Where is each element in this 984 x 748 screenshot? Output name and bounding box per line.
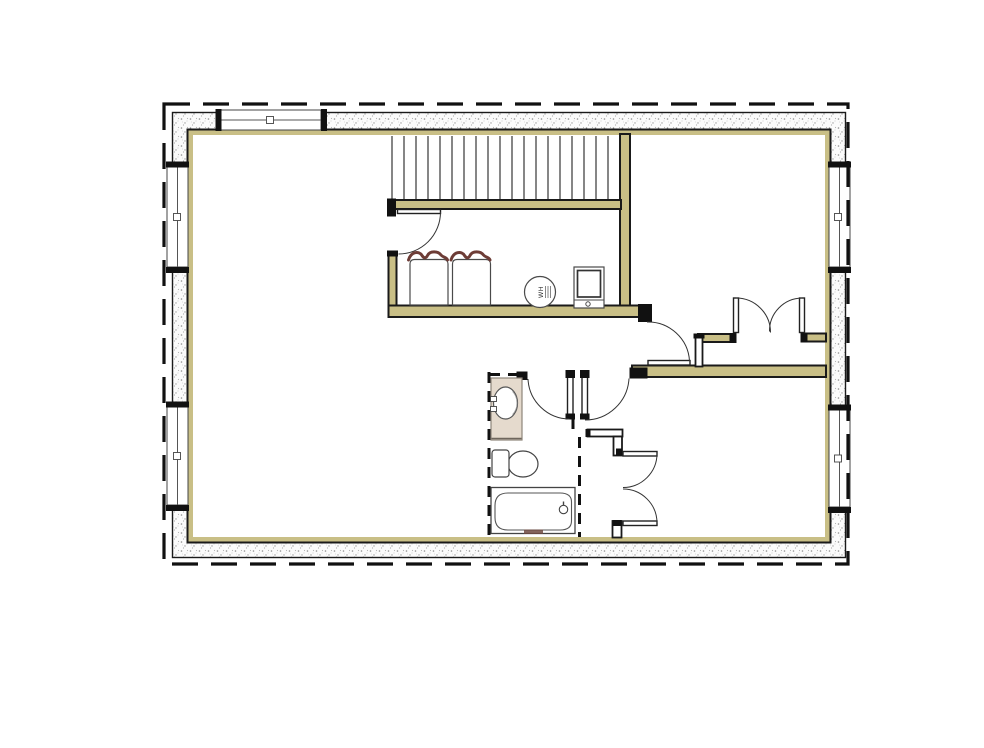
floor-plan: WH (0, 0, 984, 748)
toilet (492, 450, 538, 477)
dryer (451, 252, 491, 305)
water-heater: WH (525, 277, 556, 308)
washer (409, 252, 449, 305)
window-top (216, 109, 328, 131)
window-left-upper (166, 162, 189, 274)
vanity-sink (491, 378, 523, 440)
wall-stair-bottom (393, 200, 621, 209)
water-heater-label: WH (537, 286, 545, 298)
wall-closet-left-stub (696, 337, 703, 367)
wall-stairwell-right (620, 134, 630, 310)
furnace (574, 267, 604, 308)
faucet-icon (491, 397, 497, 402)
bathtub (491, 488, 575, 535)
wall-main-right (632, 366, 826, 378)
wall-partition-L-horizontal (588, 430, 623, 437)
window-left-lower (166, 402, 189, 512)
wall-utility-left (389, 253, 397, 310)
drain-icon (559, 505, 567, 513)
